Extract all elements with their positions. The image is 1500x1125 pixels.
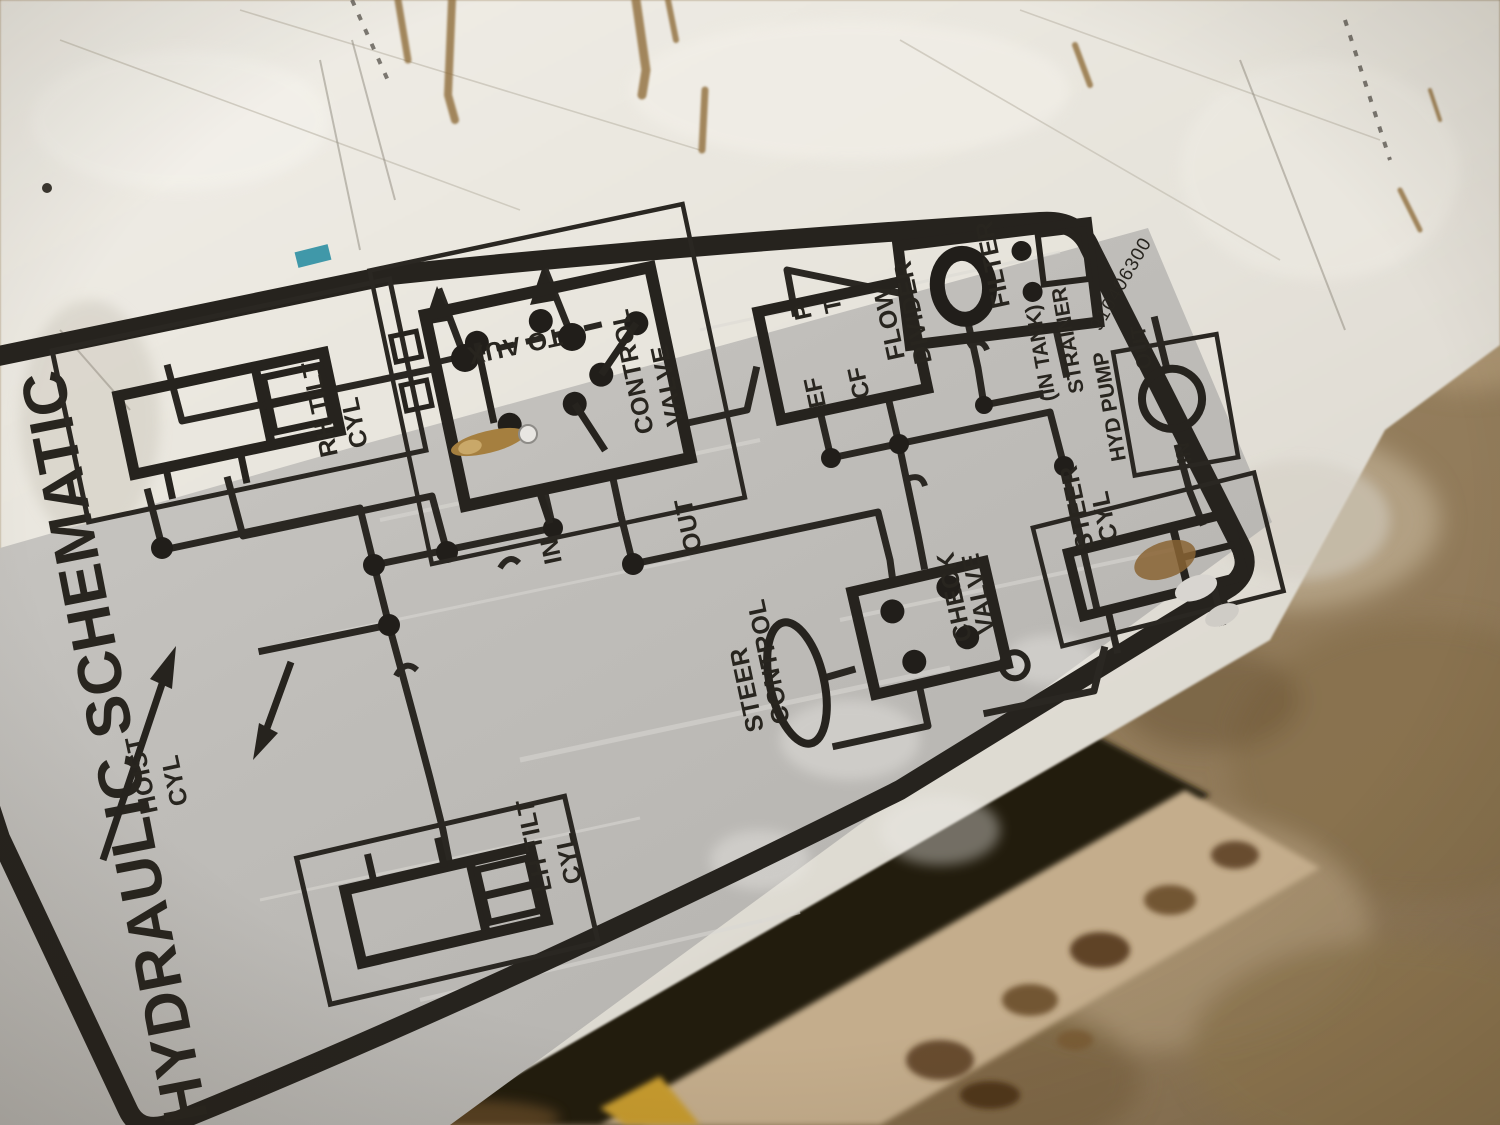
photo-vignette — [0, 0, 1500, 1125]
scene-canvas: HYDRAULIC SCHEMATIC — [0, 0, 1500, 1125]
photo-of-hydraulic-schematic-decal: HYDRAULIC SCHEMATIC — [0, 0, 1500, 1125]
